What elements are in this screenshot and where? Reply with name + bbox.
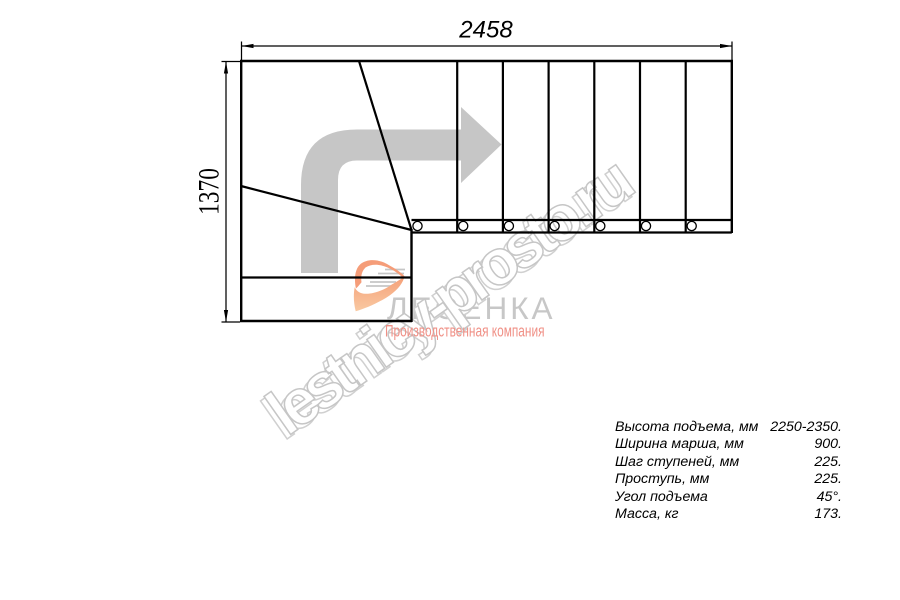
svg-text:1370: 1370	[192, 168, 225, 215]
svg-text:2458: 2458	[458, 17, 513, 44]
